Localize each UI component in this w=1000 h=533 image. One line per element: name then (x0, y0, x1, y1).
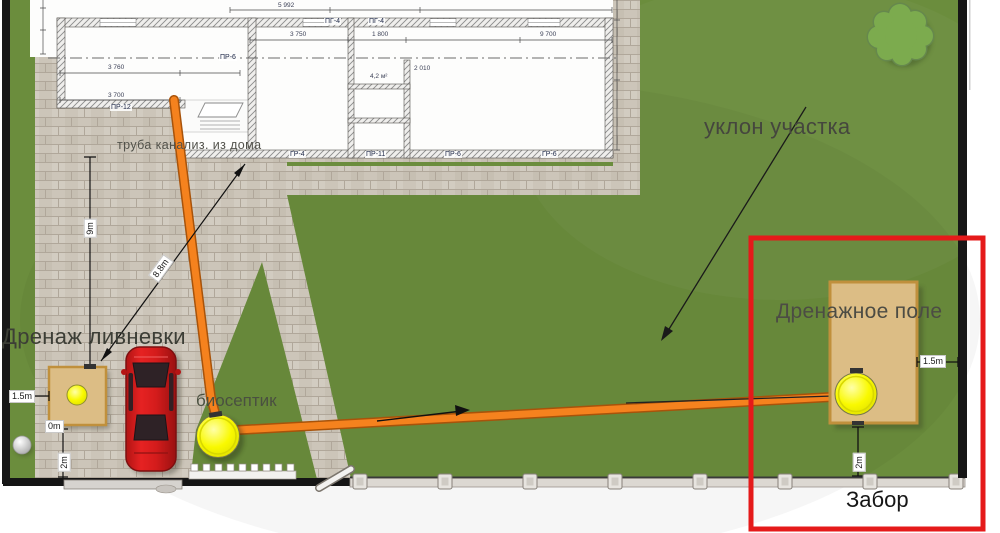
dim-storm-left: 1.5m (9, 390, 35, 403)
plan-dim-1800: 1 800 (372, 32, 388, 39)
plan-label-pr11: ПР-11 (365, 151, 386, 158)
storm-drain-label: Дренаж ливневки (2, 326, 186, 348)
site-plan-graphics (0, 0, 1000, 533)
plan-label-pr12: ПР-12 (110, 104, 132, 111)
dim-storm-to-house: 9m (84, 219, 97, 238)
car (121, 347, 181, 475)
border-shadow (969, 0, 971, 90)
plan-label-pr6-b: ПР-6 (444, 151, 462, 158)
plan-dim-3700: 3 700 (108, 93, 124, 100)
house-pipe-label: труба канализ. из дома (117, 139, 262, 152)
plan-label-gr4: ГР-4 (289, 151, 306, 158)
plan-dim-3760: 3 760 (108, 65, 124, 72)
walkway-steps (189, 464, 296, 479)
fence-label: Забор (846, 489, 909, 511)
site-plan: уклон участка Дренажное поле Дренаж ливн… (0, 0, 1000, 533)
dim-field-right: 1.5m (920, 355, 946, 368)
plan-dim-room-area: 4,2 м² (370, 74, 387, 81)
plan-dim-2010: 2 010 (414, 66, 430, 73)
dim-storm-bottom: 2m (58, 453, 71, 472)
bioseptic-label: биосептик (196, 392, 277, 409)
plan-label-pg4-a: ПГ-4 (324, 18, 341, 25)
dim-field-bottom: 2m (853, 453, 866, 472)
grass-strip (287, 162, 613, 166)
slope-label: уклон участка (704, 116, 850, 138)
drain-field-label: Дренажное поле (776, 301, 942, 322)
plan-label-gr6: ГР-6 (541, 151, 558, 158)
plan-label-pr6-a: ПР-6 (219, 54, 237, 61)
plan-label-pg4-b: ПГ-4 (368, 18, 385, 25)
pipe-inlet-cap (84, 364, 96, 369)
plan-dim-9700: 9 700 (540, 32, 556, 39)
left-border (2, 0, 10, 484)
porch (180, 100, 253, 132)
plan-dim-3750: 3 750 (290, 32, 306, 39)
plan-dim-5992: 5 992 (278, 3, 294, 10)
dim-storm-zero: 0m (45, 420, 64, 433)
